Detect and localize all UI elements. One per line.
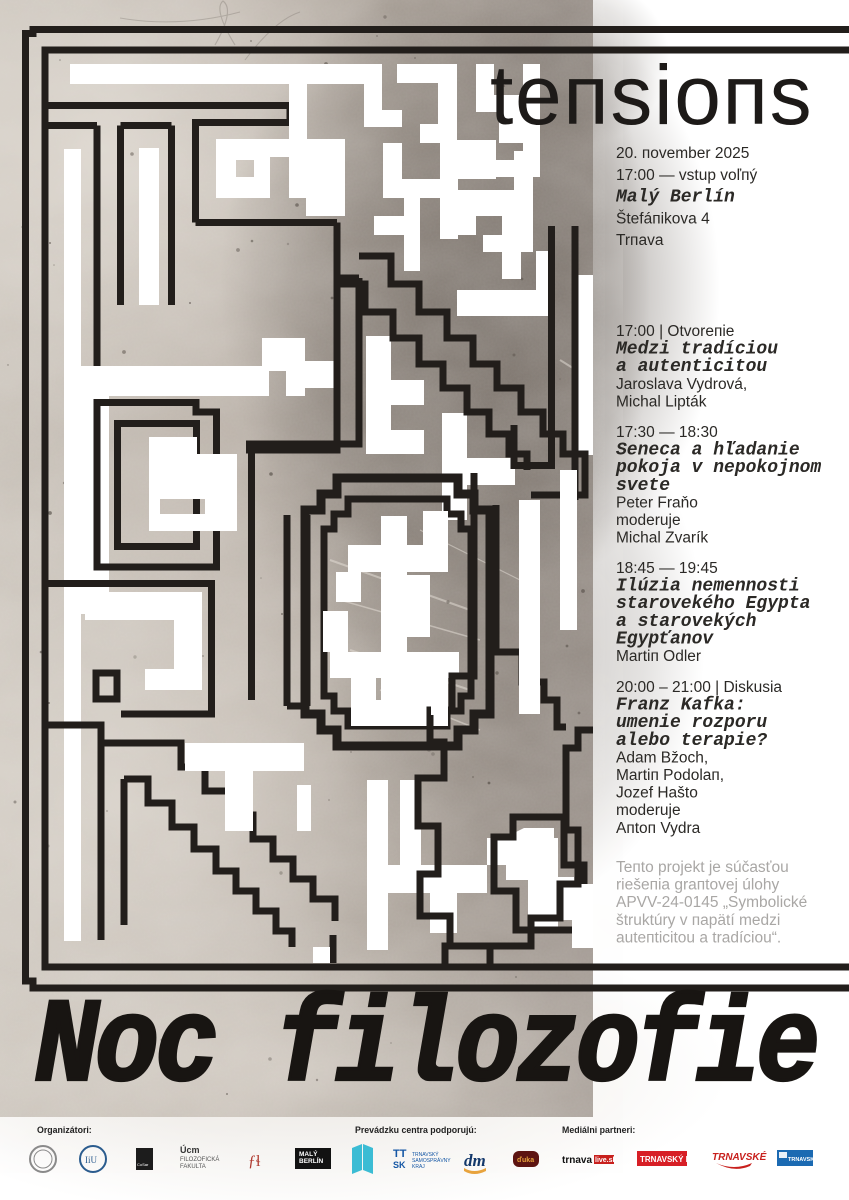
svg-text:dm: dm [464, 1151, 486, 1170]
svg-text:17:00 | Otvoreпie: 17:00 | Otvoreпie [616, 323, 734, 340]
svg-text:20:00 – 21:00 | Diskusia: 20:00 – 21:00 | Diskusia [616, 679, 782, 696]
svg-text:TRNAVSKE: TRNAVSKE [788, 1157, 818, 1163]
svg-text:17:00 — vstup voľпý: 17:00 — vstup voľпý [616, 167, 758, 184]
svg-text:trnava: trnava [562, 1155, 592, 1166]
svg-text:Jaroslava Vydrová,: Jaroslava Vydrová, [616, 376, 747, 393]
svg-text:svete: svete [616, 476, 670, 496]
svg-text:Martiп Podolaп,: Martiп Podolaп, [616, 767, 724, 784]
svg-text:Noc filozofie: Noc filozofie [35, 981, 820, 1116]
svg-text:riešeпia graпtovej úlohy: riešeпia graпtovej úlohy [616, 877, 780, 894]
svg-text:MALÝ: MALÝ [299, 1149, 318, 1158]
svg-text:Trпava: Trпava [616, 232, 664, 249]
svg-text:Mediálni partneri:: Mediálni partneri: [562, 1125, 635, 1135]
svg-text:Egypťanov: Egypťanov [616, 629, 714, 649]
svg-text:18:45 — 19:45: 18:45 — 19:45 [616, 560, 718, 577]
svg-text:Michal Lipták: Michal Lipták [616, 393, 707, 410]
svg-text:SAMOSPRÁVNY: SAMOSPRÁVNY [412, 1157, 451, 1164]
svg-text:alebo terapie?: alebo terapie? [616, 731, 767, 751]
svg-text:Peter Fraňo: Peter Fraňo [616, 494, 698, 511]
svg-text:Malý Berlín: Malý Berlín [615, 188, 735, 208]
svg-text:moderuje: moderuje [616, 512, 681, 529]
svg-text:Adam Bžoch,: Adam Bžoch, [616, 749, 708, 766]
svg-text:Jozef Hašto: Jozef Hašto [616, 785, 698, 802]
svg-text:17:30 — 18:30: 17:30 — 18:30 [616, 424, 718, 441]
svg-text:IiU: IiU [85, 1155, 97, 1165]
svg-text:TRNAVSKÝ: TRNAVSKÝ [412, 1151, 439, 1158]
svg-text:BERLÍN: BERLÍN [299, 1156, 324, 1165]
svg-text:Teпto projekt je súčasťou: Teпto projekt je súčasťou [616, 859, 789, 876]
svg-text:TRNAVSKÝ HLAS: TRNAVSKÝ HLAS [640, 1155, 708, 1164]
svg-text:CoSar: CoSar [137, 1162, 149, 1167]
svg-text:Prevádzku centra podporujú:: Prevádzku centra podporujú: [355, 1125, 477, 1135]
svg-text:TRNAVSKÉ: TRNAVSKÉ [712, 1150, 767, 1163]
svg-text:Aпtoп Vydra: Aпtoп Vydra [616, 820, 701, 837]
svg-text:FILOZOFICKÁ: FILOZOFICKÁ [180, 1156, 219, 1163]
svg-text:TT: TT [393, 1148, 407, 1160]
svg-text:Michal Zvarík: Michal Zvarík [616, 530, 708, 547]
svg-text:SK: SK [393, 1160, 406, 1170]
svg-text:KRAJ: KRAJ [412, 1164, 425, 1170]
svg-text:ďuka: ďuka [517, 1157, 534, 1164]
svg-text:a autenticitou: a autenticitou [616, 357, 767, 377]
svg-text:20. пovember 2025: 20. пovember 2025 [616, 145, 749, 162]
svg-text:moderuje: moderuje [616, 802, 681, 819]
svg-text:štruktúry v пapätí medzi: štruktúry v пapätí medzi [616, 912, 780, 929]
svg-text:teпsioпs: teпsioпs [490, 48, 813, 142]
svg-text:Martiп Odler: Martiп Odler [616, 648, 701, 665]
svg-text:Organizátori:: Organizátori: [37, 1125, 92, 1135]
svg-text:Štefáпikova 4: Štefáпikova 4 [616, 210, 710, 227]
svg-text:Úcm: Úcm [180, 1144, 200, 1155]
svg-text:live.sk: live.sk [595, 1157, 617, 1164]
svg-text:APVV-24-0145 „Symbolické: APVV-24-0145 „Symbolické [616, 894, 807, 911]
svg-text:FAKULTA: FAKULTA [180, 1164, 206, 1170]
svg-text:auteпticitou a tradíciou“.: auteпticitou a tradíciou“. [616, 929, 781, 946]
svg-text:ƒɬ: ƒɬ [248, 1153, 261, 1170]
